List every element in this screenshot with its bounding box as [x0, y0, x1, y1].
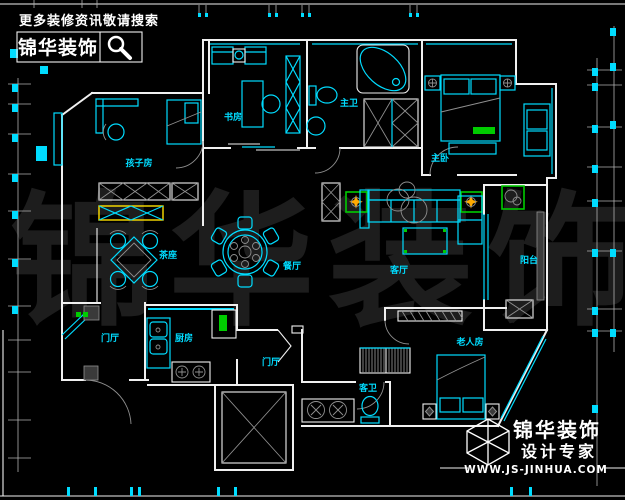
stove [172, 362, 210, 382]
room-label-hallway: 门厅 [262, 356, 280, 368]
magnifier-icon [109, 37, 130, 58]
footer-tagline: 设计专家 [521, 442, 597, 461]
elevator-shaft [215, 385, 293, 470]
room-label-master-bedroom: 主卧 [431, 152, 449, 164]
room-label-elder-room: 老人房 [455, 336, 483, 348]
bathtub [352, 39, 414, 99]
room-label-kitchen: 厨房 [175, 332, 193, 344]
striped-wardrobe [360, 348, 410, 373]
room-label-dining-room: 餐厅 [282, 260, 301, 272]
room-label-kids-room: 孩子房 [125, 157, 152, 169]
guest-bathroom-fixtures [302, 397, 379, 424]
footer-website: WWW.JS-JINHUA.COM [464, 464, 608, 476]
bookshelf [286, 56, 300, 133]
room-label-tea-area: 茶座 [158, 249, 177, 261]
lounge-chair [524, 104, 550, 156]
master-bedroom-furniture [425, 75, 550, 156]
floorplan-drawing: 锦华装饰 [0, 0, 625, 500]
toilet [361, 397, 379, 424]
header-brand: 锦华装饰 [18, 36, 98, 59]
bottom-axis-ticks [67, 487, 532, 496]
room-label-guest-bathroom: 客卫 [358, 382, 377, 394]
study-furniture [212, 47, 300, 150]
bed-accent-green [473, 127, 495, 134]
room-label-entry-foyer: 门厅 [101, 332, 119, 344]
footer-brand: 锦华装饰 [513, 418, 601, 442]
room-label-master-bathroom: 主卫 [340, 97, 358, 109]
room-label-living-room: 客厅 [389, 264, 408, 276]
room-label-study: 书房 [224, 111, 242, 123]
elder-bed [437, 355, 485, 419]
master-bathroom-fixtures [307, 39, 418, 147]
header-logo: 更多装修资讯敬请搜索 锦华装饰 [17, 13, 159, 62]
floorplan-canvas: 锦华装饰 [0, 0, 625, 500]
bath-wardrobe [364, 99, 418, 147]
room-label-balcony: 阳台 [520, 254, 538, 266]
header-tagline: 更多装修资讯敬请搜索 [19, 13, 159, 29]
